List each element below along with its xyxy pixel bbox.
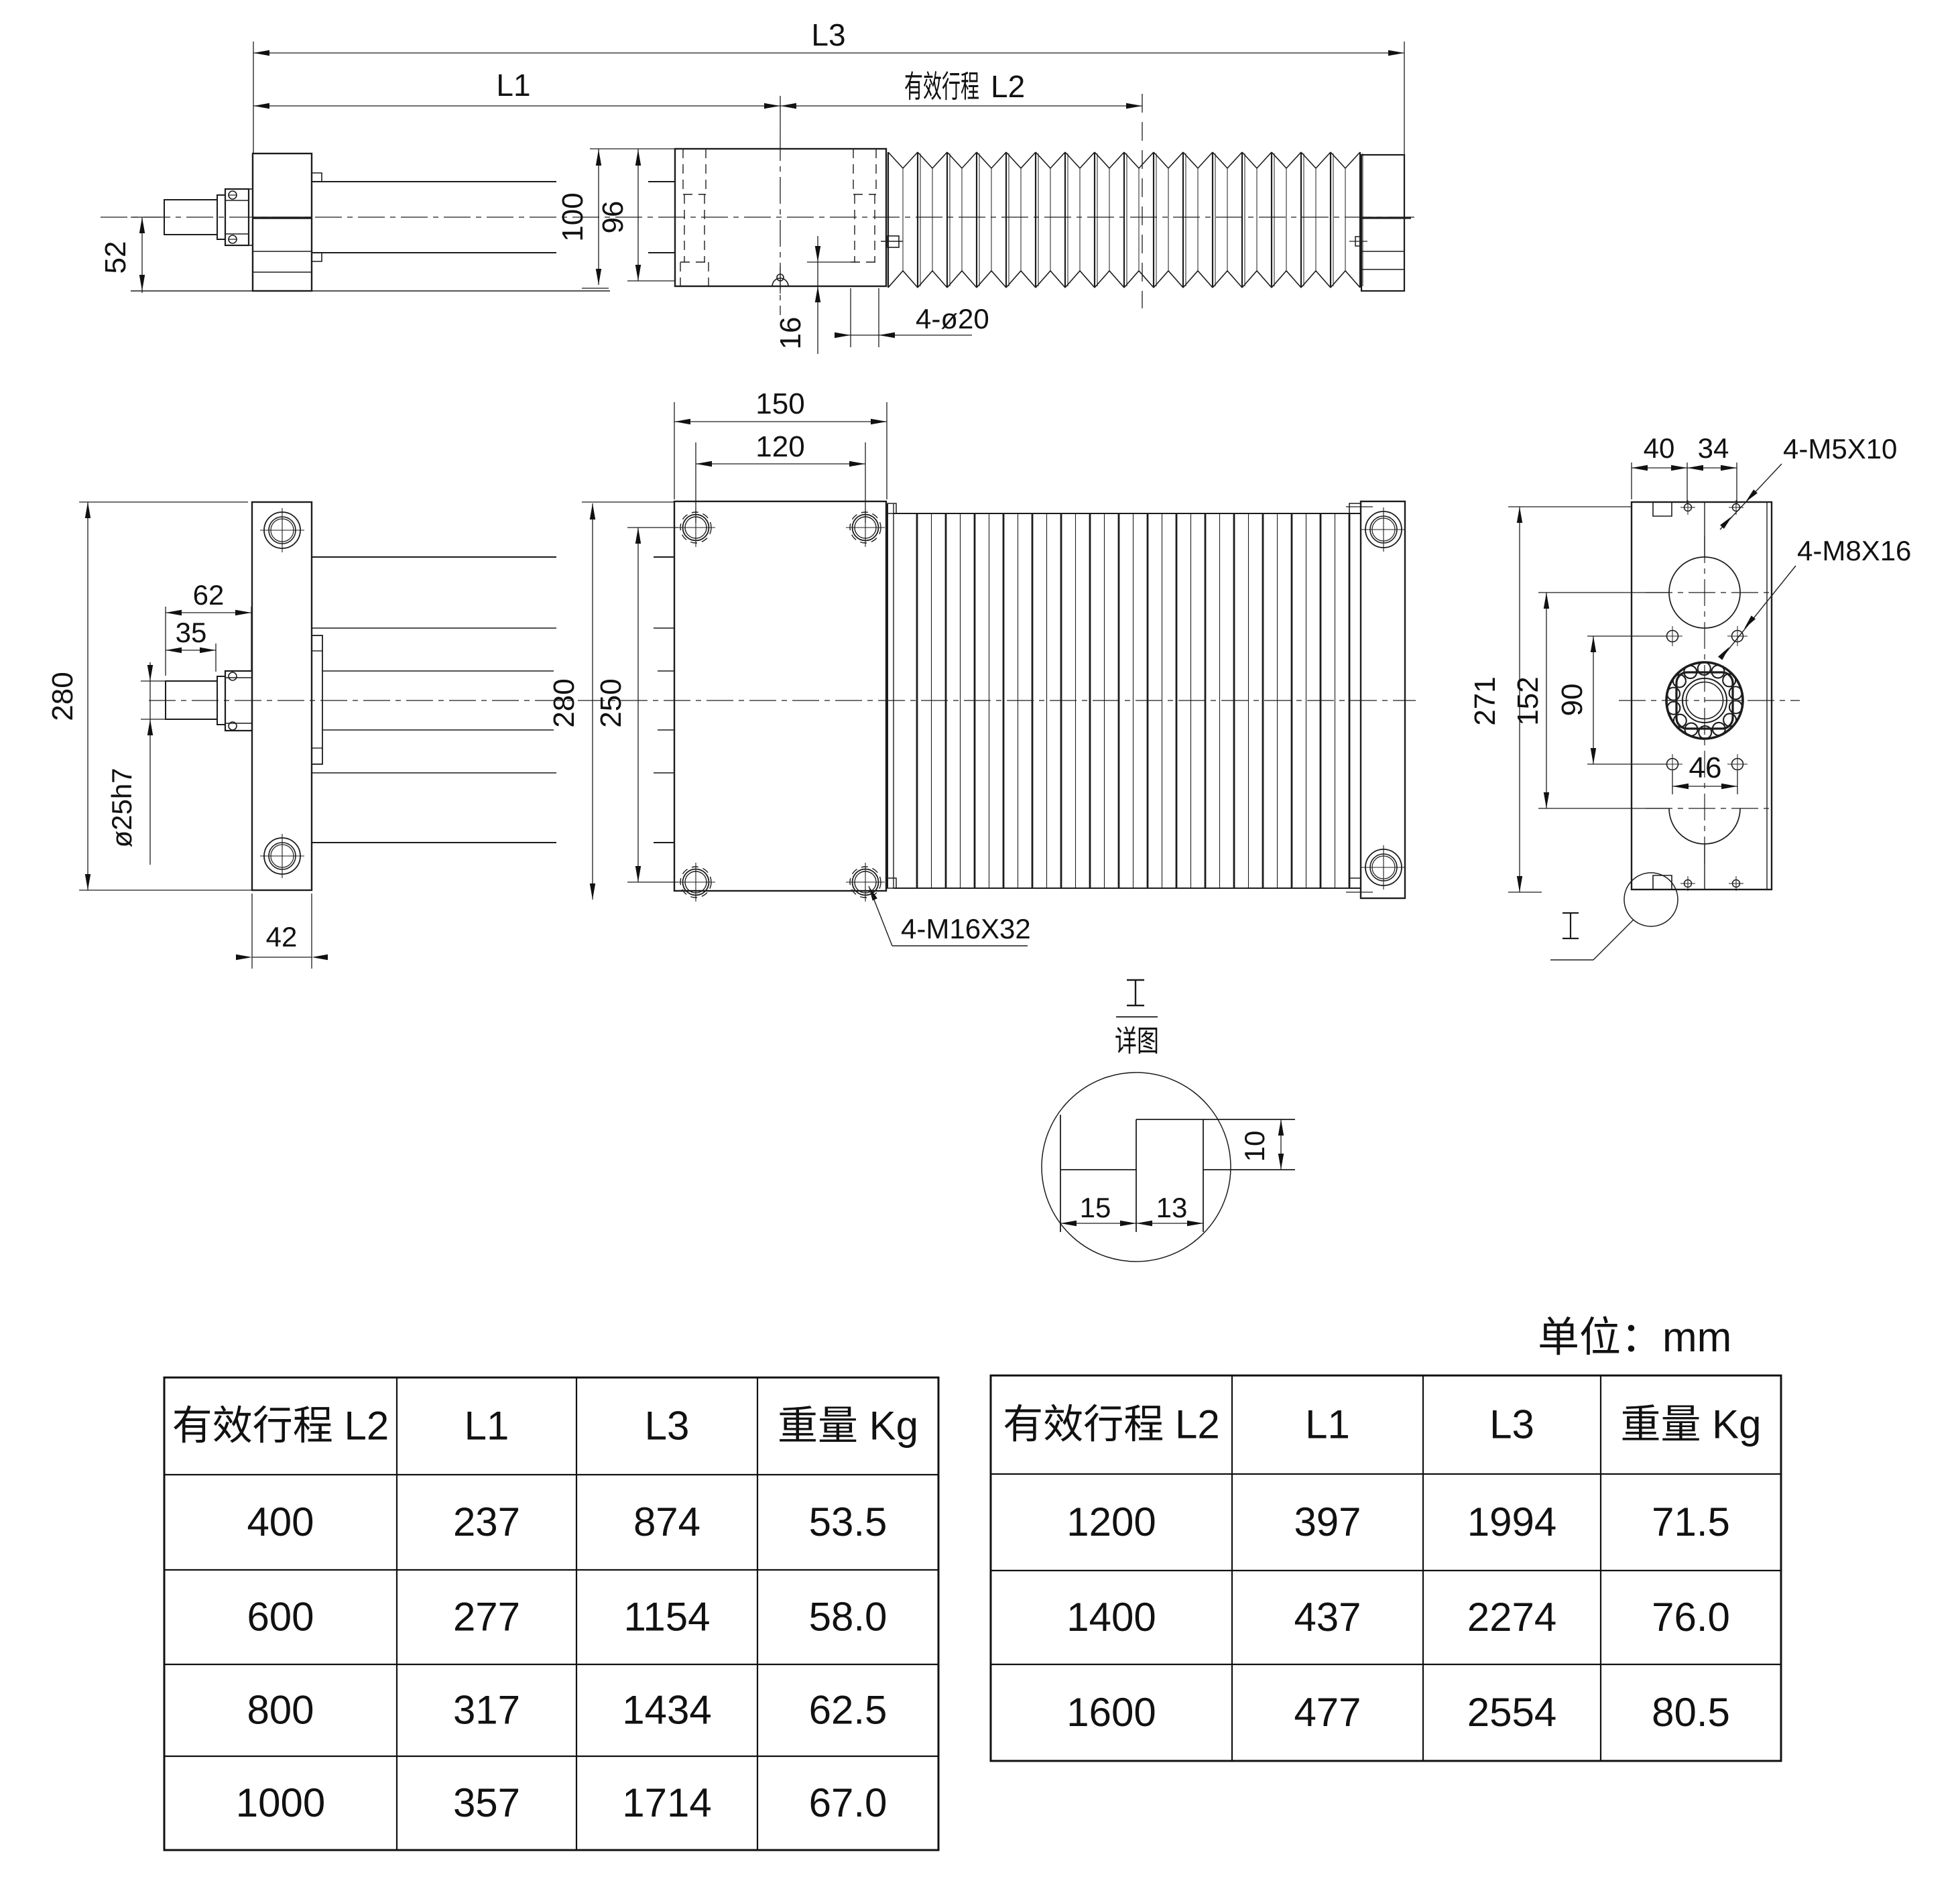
svg-text:237: 237: [453, 1499, 520, 1544]
svg-text:152: 152: [1512, 676, 1544, 725]
svg-text:L3: L3: [1489, 1402, 1534, 1447]
svg-text:2554: 2554: [1467, 1690, 1556, 1735]
svg-text:L1: L1: [465, 1404, 509, 1449]
svg-text:280: 280: [548, 678, 580, 727]
svg-text:重量 Kg: 重量 Kg: [778, 1404, 918, 1449]
svg-text:4-M5X10: 4-M5X10: [1783, 433, 1897, 465]
svg-text:357: 357: [453, 1780, 520, 1825]
svg-text:874: 874: [633, 1499, 700, 1544]
svg-text:4-ø20: 4-ø20: [916, 303, 989, 334]
svg-text:1600: 1600: [1066, 1690, 1156, 1735]
svg-text:重量 Kg: 重量 Kg: [1620, 1402, 1761, 1447]
svg-text:120: 120: [755, 430, 804, 463]
svg-text:58.0: 58.0: [809, 1595, 887, 1640]
svg-text:4-M16X32: 4-M16X32: [901, 913, 1031, 944]
svg-text:96: 96: [597, 201, 629, 234]
svg-text:L2: L2: [991, 69, 1025, 104]
svg-text:62: 62: [193, 579, 225, 611]
svg-text:280: 280: [46, 672, 79, 721]
svg-text:800: 800: [247, 1688, 314, 1733]
svg-text:100: 100: [556, 192, 589, 241]
svg-text:13: 13: [1156, 1192, 1188, 1223]
svg-text:62.5: 62.5: [809, 1688, 887, 1733]
svg-text:1434: 1434: [622, 1688, 711, 1733]
svg-text:2274: 2274: [1467, 1595, 1556, 1640]
svg-text:详图: 详图: [1115, 1025, 1159, 1058]
svg-text:L1: L1: [496, 68, 530, 103]
svg-text:单位：mm: 单位：mm: [1538, 1314, 1731, 1361]
svg-text:L1: L1: [1305, 1402, 1350, 1447]
svg-text:150: 150: [755, 387, 804, 420]
svg-text:277: 277: [453, 1595, 520, 1640]
svg-text:1994: 1994: [1467, 1499, 1556, 1544]
svg-text:1200: 1200: [1066, 1499, 1156, 1544]
svg-text:L3: L3: [645, 1404, 690, 1449]
svg-text:4-M8X16: 4-M8X16: [1797, 535, 1911, 566]
svg-text:317: 317: [453, 1688, 520, 1733]
svg-text:16: 16: [774, 317, 807, 350]
svg-text:271: 271: [1469, 676, 1502, 725]
svg-text:71.5: 71.5: [1652, 1499, 1730, 1544]
svg-text:600: 600: [247, 1595, 314, 1640]
svg-text:400: 400: [247, 1499, 314, 1544]
svg-text:34: 34: [1698, 432, 1729, 464]
svg-text:90: 90: [1556, 684, 1589, 717]
svg-text:L3: L3: [811, 17, 845, 52]
svg-text:80.5: 80.5: [1652, 1690, 1730, 1735]
svg-text:有效行程: 有效行程: [904, 69, 979, 104]
svg-text:477: 477: [1294, 1690, 1361, 1735]
svg-text:76.0: 76.0: [1652, 1595, 1730, 1640]
svg-text:67.0: 67.0: [809, 1780, 887, 1825]
svg-text:40: 40: [1644, 432, 1675, 464]
svg-text:ø25h7: ø25h7: [106, 768, 137, 847]
svg-text:437: 437: [1294, 1595, 1361, 1640]
svg-text:52: 52: [99, 241, 132, 274]
svg-text:有效行程 L2: 有效行程 L2: [172, 1404, 389, 1449]
svg-text:397: 397: [1294, 1499, 1361, 1544]
svg-text:1154: 1154: [623, 1595, 710, 1640]
svg-text:46: 46: [1689, 751, 1722, 784]
svg-text:1714: 1714: [622, 1780, 711, 1825]
svg-text:42: 42: [266, 921, 298, 953]
svg-text:35: 35: [176, 617, 207, 648]
svg-text:250: 250: [595, 678, 627, 727]
svg-text:10: 10: [1239, 1131, 1270, 1162]
svg-text:有效行程 L2: 有效行程 L2: [1003, 1402, 1219, 1447]
svg-text:15: 15: [1080, 1192, 1111, 1223]
svg-text:1400: 1400: [1066, 1595, 1156, 1640]
svg-text:53.5: 53.5: [809, 1499, 887, 1544]
svg-text:1000: 1000: [236, 1780, 325, 1825]
